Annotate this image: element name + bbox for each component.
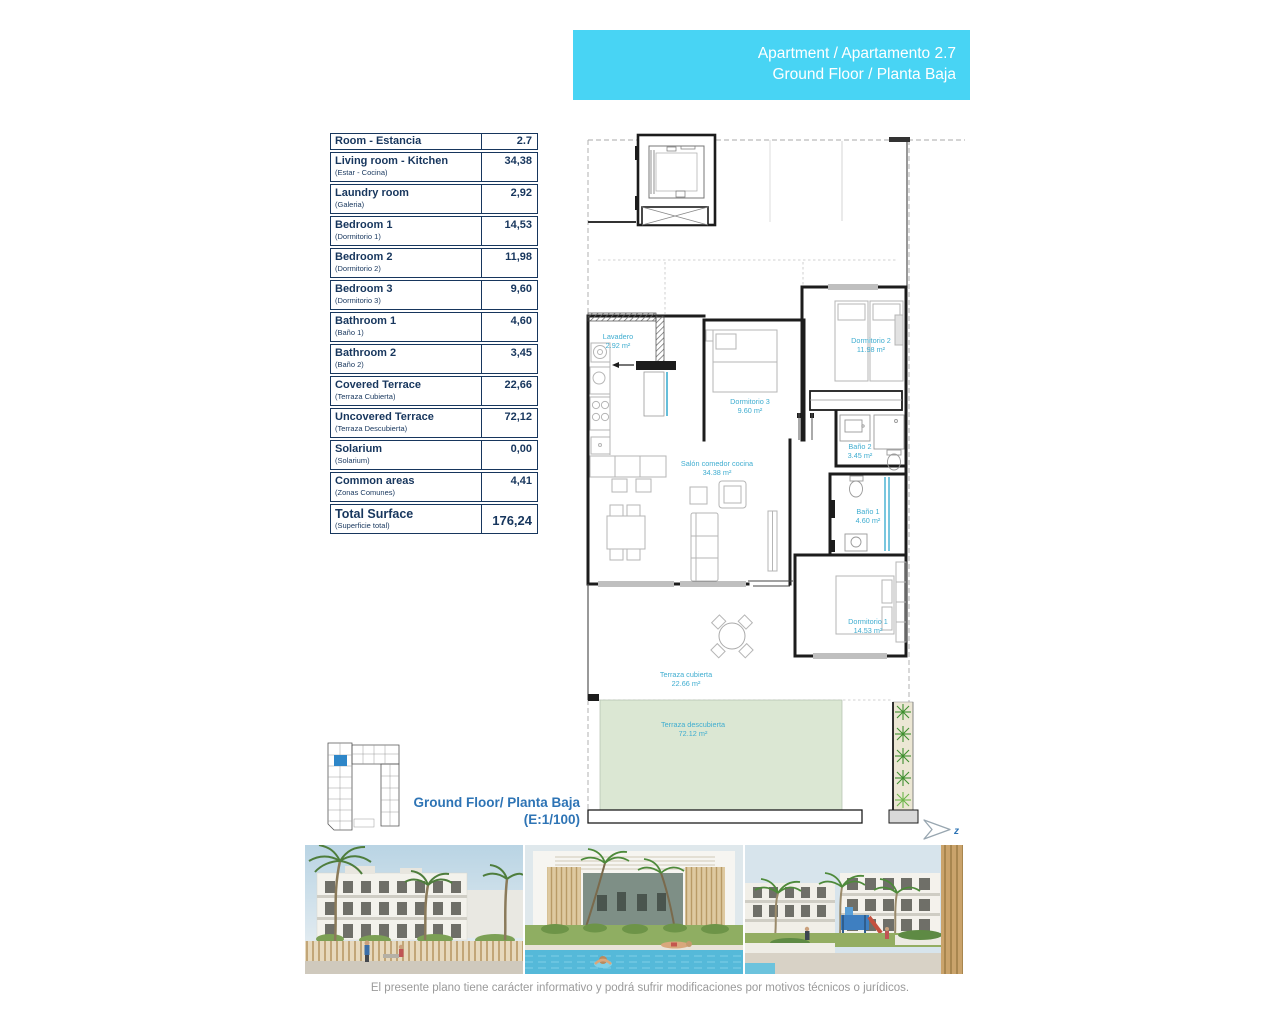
total-value: 176,24 [482,505,537,533]
row-sublabel: (Dormitorio 2) [335,264,477,274]
room-area-salon: 34.38 m² [703,468,732,477]
row-value: 22,66 [482,377,537,405]
table-row: Bathroom 1(Baño 1) 4,60 [330,312,538,342]
row-label: Living room - Kitchen [335,155,477,168]
furniture [590,301,906,658]
row-sublabel: (Dormitorio 3) [335,296,477,306]
row-sublabel: (Solarium) [335,456,477,466]
room-area-bano2: 3.45 m² [848,451,873,460]
row-label: Bedroom 1 [335,219,477,232]
room-label-salon: Salón comedor cocina [681,459,754,468]
walkway-edge [588,810,862,823]
uncovered-terrace-area [600,700,842,810]
key-plan [322,733,406,837]
row-sublabel: (Terraza Descubierta) [335,424,477,434]
room-label-lavadero: Lavadero [603,332,633,341]
wardrobe [810,391,902,410]
total-label: Total Surface [335,507,477,521]
table-row: Common areas(Zonas Comunes) 4,41 [330,472,538,502]
surface-table: Room - Estancia 2.7 Living room - Kitche… [330,133,538,536]
table-total-row: Total Surface(Superficie total) 176,24 [330,504,538,534]
room-area-lavadero: 2.92 m² [606,341,631,350]
total-sublabel: (Superficie total) [335,521,477,531]
north-arrow-icon: z [924,820,959,839]
bathroom-fixtures [830,415,904,552]
room-label-bano2: Baño 2 [848,442,871,451]
room-area-dormitorio3: 9.60 m² [738,406,763,415]
room-area-terraza-descubierta: 72.12 m² [679,729,708,738]
row-sublabel: (Estar - Cocina) [335,168,477,178]
table-row: Covered Terrace(Terraza Cubierta) 22,66 [330,376,538,406]
title-line-apartment: Apartment / Apartamento 2.7 [758,44,956,65]
title-line-floor: Ground Floor / Planta Baja [772,65,956,86]
row-sublabel: (Dormitorio 1) [335,232,477,242]
table-header-label: Room - Estancia [331,134,482,149]
laundry-wall-hatch [656,316,664,362]
floor-plan: Lavadero 2.92 m² Dormitorio 3 9.60 m² Do… [580,110,985,845]
row-value: 9,60 [482,281,537,309]
table-header-row: Room - Estancia 2.7 [330,133,538,150]
corridor-wall [889,137,910,142]
title-block: Apartment / Apartamento 2.7 Ground Floor… [573,30,970,100]
floor-scale-label: Ground Floor/ Planta Baja (E:1/100) [400,795,580,829]
render-photo-pool [525,845,743,974]
room-label-dormitorio2: Dormitorio 2 [851,336,891,345]
room-label-dormitorio1: Dormitorio 1 [848,617,888,626]
row-value: 2,92 [482,185,537,213]
compass-label: z [953,826,959,837]
row-value: 11,98 [482,249,537,277]
window [598,284,887,659]
row-sublabel: (Terraza Cubierta) [335,392,477,402]
floor-label-text: Ground Floor/ Planta Baja [400,795,580,812]
row-sublabel: (Zonas Comunes) [335,488,477,498]
row-label: Bedroom 3 [335,283,477,296]
row-sublabel: (Galeria) [335,200,477,210]
table-row: Bedroom 2(Dormitorio 2) 11,98 [330,248,538,278]
table-row: Uncovered Terrace(Terraza Descubierta) 7… [330,408,538,438]
scale-label-text: (E:1/100) [400,812,580,829]
row-label: Bathroom 1 [335,315,477,328]
row-label: Solarium [335,443,477,456]
room-label-terraza-descubierta: Terraza descubierta [661,720,726,729]
row-label: Bathroom 2 [335,347,477,360]
entry-door [612,361,676,416]
table-row: Solarium(Solarium) 0,00 [330,440,538,470]
plan-sheet: Apartment / Apartamento 2.7 Ground Floor… [0,0,1280,1024]
table-header-value: 2.7 [482,134,537,149]
table-row: Bedroom 3(Dormitorio 3) 9,60 [330,280,538,310]
row-label: Bedroom 2 [335,251,477,264]
disclaimer-text: El presente plano tiene carácter informa… [0,982,1280,994]
room-area-terraza-cubierta: 22.66 m² [672,679,701,688]
row-label: Laundry room [335,187,477,200]
row-label: Uncovered Terrace [335,411,477,424]
table-row: Bedroom 1(Dormitorio 1) 14,53 [330,216,538,246]
row-value: 3,45 [482,345,537,373]
row-value: 14,53 [482,217,537,245]
row-label: Covered Terrace [335,379,477,392]
render-photo-exterior [305,845,523,974]
room-label-bano1: Baño 1 [856,507,879,516]
room-label-terraza-cubierta: Terraza cubierta [660,670,713,679]
sliding-door [748,581,793,586]
row-value: 4,41 [482,473,537,501]
table-row: Laundry room(Galeria) 2,92 [330,184,538,214]
plants-icon [893,702,913,810]
terrace-pillar [588,694,599,701]
render-photo-playground [745,845,963,974]
row-value: 4,60 [482,313,537,341]
row-sublabel: (Baño 2) [335,360,477,370]
laundry-wall-hatch [588,313,656,321]
table-row: Bathroom 2(Baño 2) 3,45 [330,344,538,374]
room-area-dormitorio2: 11.98 m² [857,345,886,354]
room-area-dormitorio1: 14.53 m² [854,626,883,635]
room-label-dormitorio3: Dormitorio 3 [730,397,770,406]
row-value: 0,00 [482,441,537,469]
render-photos [305,845,963,974]
elevator-icon [635,135,715,225]
row-sublabel: (Baño 1) [335,328,477,338]
row-label: Common areas [335,475,477,488]
row-value: 34,38 [482,153,537,181]
row-value: 72,12 [482,409,537,437]
walkway-edge [889,810,918,823]
room-area-bano1: 4.60 m² [856,516,881,525]
highlighted-unit [334,755,347,766]
table-row: Living room - Kitchen(Estar - Cocina) 34… [330,152,538,182]
